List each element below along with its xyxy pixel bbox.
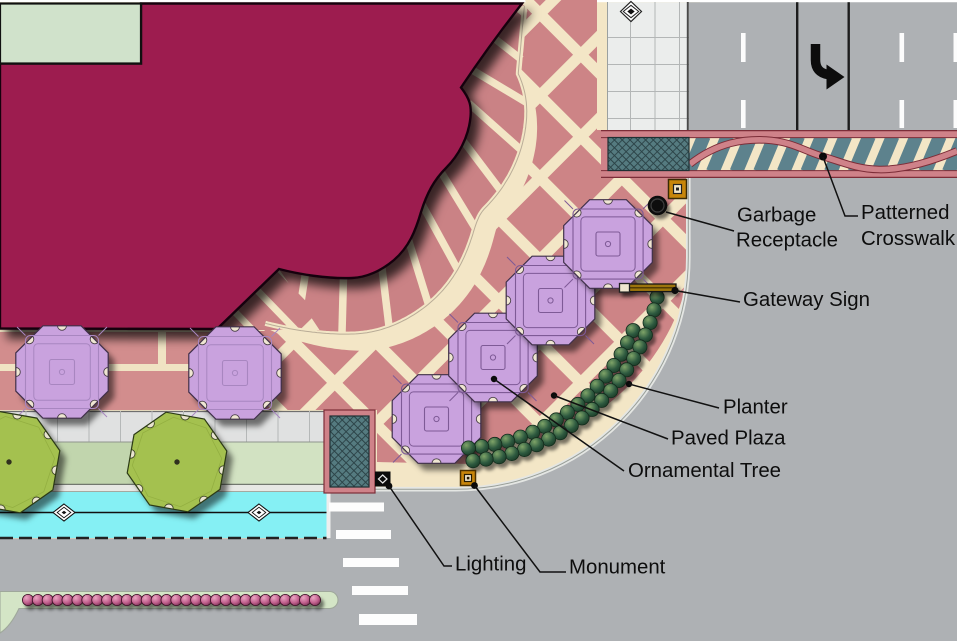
svg-text:Lighting: Lighting (455, 554, 526, 576)
svg-text:Ornamental Tree: Ornamental Tree (628, 460, 781, 482)
svg-text:Gateway Sign: Gateway Sign (743, 289, 870, 311)
svg-text:Monument: Monument (569, 557, 666, 579)
svg-text:Planter: Planter (723, 397, 788, 419)
svg-text:Patterned: Patterned (861, 202, 949, 224)
svg-text:Receptacle: Receptacle (736, 230, 838, 252)
svg-text:Paved Plaza: Paved Plaza (671, 428, 786, 450)
svg-text:Garbage: Garbage (737, 205, 816, 227)
svg-text:Crosswalk: Crosswalk (861, 228, 956, 250)
